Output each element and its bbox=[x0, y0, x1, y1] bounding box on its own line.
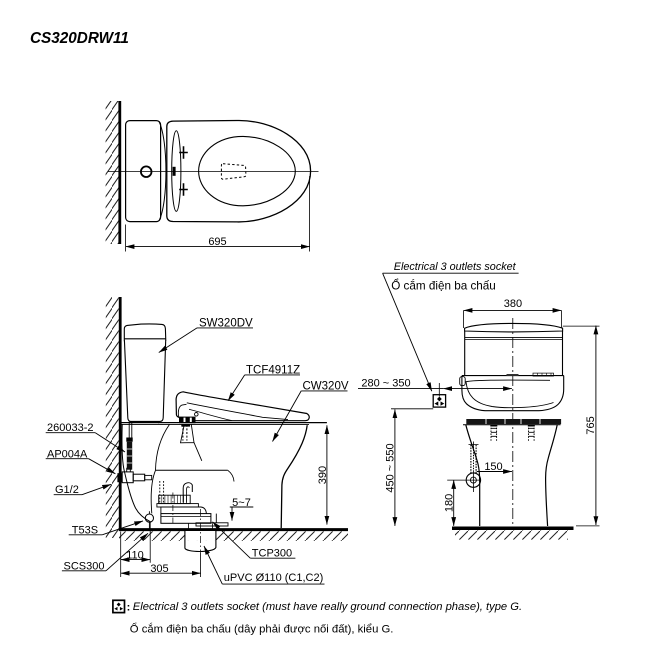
svg-text:180: 180 bbox=[443, 494, 455, 512]
svg-text:380: 380 bbox=[504, 298, 522, 310]
svg-text:uPVC Ø110 (C1,C2): uPVC Ø110 (C1,C2) bbox=[224, 572, 323, 584]
svg-text:280 ~ 350: 280 ~ 350 bbox=[361, 377, 410, 389]
svg-text:390: 390 bbox=[317, 466, 329, 484]
svg-text:Ổ cắm điện ba chấu: Ổ cắm điện ba chấu bbox=[391, 280, 496, 293]
svg-text:110: 110 bbox=[126, 549, 144, 561]
svg-text:Ổ cắm điện ba chấu (dây phải đ: Ổ cắm điện ba chấu (dây phải được nối đấ… bbox=[130, 622, 394, 635]
svg-text:TCP300: TCP300 bbox=[252, 547, 292, 559]
svg-text:450 ~ 550: 450 ~ 550 bbox=[384, 443, 396, 492]
svg-text:765: 765 bbox=[585, 416, 597, 434]
svg-text:Electrical 3 outlets socket (m: Electrical 3 outlets socket (must have r… bbox=[133, 601, 522, 613]
svg-text:305: 305 bbox=[150, 563, 168, 575]
svg-text:695: 695 bbox=[208, 236, 226, 248]
svg-text:CS320DRW11: CS320DRW11 bbox=[30, 30, 129, 47]
svg-text::: : bbox=[127, 602, 131, 614]
svg-text:Electrical 3 outlets socket: Electrical 3 outlets socket bbox=[394, 261, 517, 273]
